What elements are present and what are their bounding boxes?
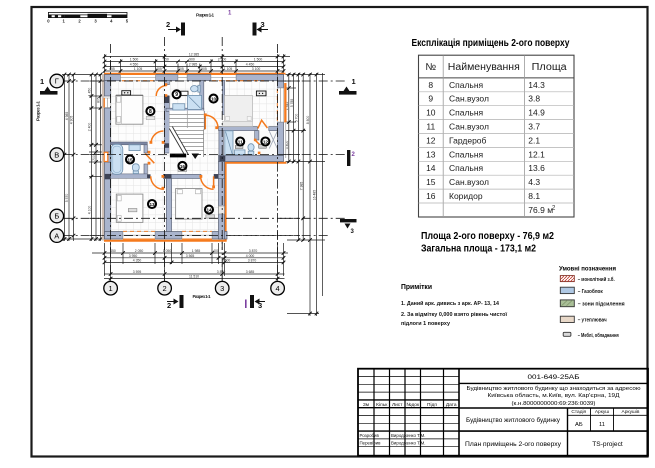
svg-text:1 985: 1 985 bbox=[192, 249, 201, 253]
svg-text:Виродженко Т.М.: Виродженко Т.М. bbox=[391, 441, 425, 446]
svg-text:1 105: 1 105 bbox=[134, 67, 143, 71]
svg-text:TS-project: TS-project bbox=[592, 441, 623, 448]
svg-text:Сан.вузол: Сан.вузол bbox=[449, 94, 489, 104]
svg-text:Г: Г bbox=[55, 77, 59, 86]
svg-text:13: 13 bbox=[149, 202, 155, 207]
svg-text:10: 10 bbox=[211, 97, 217, 102]
svg-text:5 700: 5 700 bbox=[295, 114, 299, 123]
svg-text:13.6: 13.6 bbox=[528, 163, 545, 173]
svg-text:Площа 2-ого поверху - 76,9 м2: Площа 2-ого поверху - 76,9 м2 bbox=[421, 231, 554, 242]
svg-text:Разрез 1-1: Разрез 1-1 bbox=[193, 294, 211, 299]
svg-text:2 050: 2 050 bbox=[135, 249, 144, 253]
svg-text:4 100: 4 100 bbox=[88, 206, 92, 215]
svg-text:16: 16 bbox=[426, 191, 436, 201]
svg-text:16: 16 bbox=[180, 164, 186, 169]
svg-text:5 785: 5 785 bbox=[290, 99, 294, 108]
svg-text:4: 4 bbox=[276, 284, 280, 293]
svg-text:3 500: 3 500 bbox=[222, 258, 231, 262]
svg-text:950: 950 bbox=[163, 58, 169, 62]
svg-text:Підп: Підп bbox=[427, 402, 437, 408]
svg-text:Зм: Зм bbox=[363, 402, 369, 408]
svg-text:1: 1 bbox=[109, 284, 113, 293]
svg-text:455: 455 bbox=[109, 67, 115, 71]
svg-text:400: 400 bbox=[213, 249, 219, 253]
svg-text:4.3: 4.3 bbox=[528, 177, 540, 187]
svg-text:Сан.вузол: Сан.вузол bbox=[449, 177, 489, 187]
svg-text:9: 9 bbox=[428, 94, 433, 104]
svg-text:12.1: 12.1 bbox=[528, 149, 545, 159]
svg-text:Умовні позначення: Умовні позначення bbox=[559, 266, 616, 272]
svg-text:АБ: АБ bbox=[575, 422, 583, 428]
svg-text:Аркушів: Аркушів bbox=[622, 409, 640, 415]
svg-text:1 450: 1 450 bbox=[88, 88, 92, 97]
svg-text:Спальня: Спальня bbox=[449, 80, 484, 90]
svg-text:2: 2 bbox=[163, 284, 167, 293]
svg-text:7 985: 7 985 bbox=[299, 182, 303, 191]
svg-text:Кільк: Кільк bbox=[376, 402, 388, 408]
svg-text:– зони підсилення: – зони підсилення bbox=[578, 302, 625, 308]
svg-text:Б: Б bbox=[54, 212, 59, 221]
svg-text:4 350: 4 350 bbox=[133, 258, 142, 262]
svg-text:– утеплювач: – утеплювач bbox=[578, 318, 607, 324]
svg-text:8.1: 8.1 bbox=[528, 191, 540, 201]
svg-text:3 830: 3 830 bbox=[217, 270, 226, 274]
svg-text:Київська область, м.Київ, вул.: Київська область, м.Київ, вул. Кар'єрна,… bbox=[488, 393, 620, 399]
svg-text:3.7: 3.7 bbox=[528, 122, 540, 132]
svg-text:10: 10 bbox=[426, 108, 436, 118]
svg-text:3.8: 3.8 bbox=[528, 94, 540, 104]
svg-text:2 400: 2 400 bbox=[88, 123, 92, 132]
svg-text:2.1: 2.1 bbox=[528, 135, 540, 145]
svg-text:3: 3 bbox=[220, 284, 224, 293]
svg-text:3 565: 3 565 bbox=[186, 254, 195, 258]
svg-text:(к.н.8000000000:69:236:0039): (к.н.8000000000:69:236:0039) bbox=[512, 401, 596, 407]
svg-text:Лист: Лист bbox=[392, 402, 403, 408]
svg-text:1 050: 1 050 bbox=[163, 249, 172, 253]
svg-text:Розробив: Розробив bbox=[360, 433, 380, 438]
svg-text:4 450: 4 450 bbox=[246, 63, 255, 67]
svg-text:905: 905 bbox=[201, 67, 207, 71]
svg-text:11: 11 bbox=[599, 422, 605, 428]
svg-text:8: 8 bbox=[149, 109, 152, 115]
svg-text:3 870: 3 870 bbox=[249, 249, 258, 253]
svg-text:76.9 м: 76.9 м bbox=[528, 205, 553, 215]
svg-text:Дата: Дата bbox=[446, 402, 457, 408]
svg-text:4 985: 4 985 bbox=[65, 112, 69, 121]
svg-text:підлоги 1 поверху: підлоги 1 поверху bbox=[401, 321, 451, 327]
svg-text:450: 450 bbox=[110, 249, 116, 253]
svg-text:14.9: 14.9 bbox=[528, 108, 545, 118]
svg-text:Примітки: Примітки bbox=[401, 282, 432, 291]
svg-text:Стадія: Стадія bbox=[571, 409, 586, 415]
svg-text:12: 12 bbox=[426, 135, 436, 145]
svg-text:4 905: 4 905 bbox=[70, 116, 74, 125]
svg-text:12 385: 12 385 bbox=[189, 53, 199, 57]
svg-text:805: 805 bbox=[97, 97, 101, 103]
svg-text:11: 11 bbox=[238, 139, 243, 144]
svg-text:15: 15 bbox=[426, 177, 436, 187]
svg-text:14: 14 bbox=[426, 163, 436, 173]
svg-text:2: 2 bbox=[166, 20, 170, 29]
svg-text:8: 8 bbox=[428, 80, 433, 90]
svg-text:1 500: 1 500 bbox=[254, 58, 263, 62]
svg-text:1. Даний арк. дивись з арк. АР: 1. Даний арк. дивись з арк. АР- 13, 14 bbox=[401, 300, 500, 307]
svg-text:705: 705 bbox=[178, 67, 184, 71]
svg-text:– Меблі, обладнання: – Меблі, обладнання bbox=[578, 332, 619, 339]
svg-text:12: 12 bbox=[263, 139, 269, 144]
svg-text:№: № bbox=[425, 62, 436, 73]
svg-text:15: 15 bbox=[127, 157, 133, 162]
svg-text:Гардероб: Гардероб bbox=[449, 135, 487, 145]
svg-text:2: 2 bbox=[167, 301, 171, 310]
svg-text:1: 1 bbox=[40, 77, 44, 86]
svg-text:4 000: 4 000 bbox=[246, 254, 255, 258]
svg-text:А: А bbox=[54, 231, 59, 240]
svg-text:Сан.вузол: Сан.вузол bbox=[449, 122, 489, 132]
svg-text:700: 700 bbox=[92, 155, 96, 161]
svg-text:2 985: 2 985 bbox=[189, 63, 198, 67]
svg-text:3 950: 3 950 bbox=[129, 254, 138, 258]
svg-text:Разрез 1-1: Разрез 1-1 bbox=[196, 13, 214, 18]
svg-text:405: 405 bbox=[156, 67, 162, 71]
svg-text:3 685: 3 685 bbox=[246, 270, 255, 274]
svg-text:План приміщень 2-ого поверху: План приміщень 2-ого поверху bbox=[465, 440, 562, 448]
svg-text:5 570: 5 570 bbox=[65, 194, 69, 203]
svg-text:Коридор: Коридор bbox=[449, 191, 483, 201]
svg-text:Будівництво житлового будинку: Будівництво житлового будинку що знаходи… bbox=[467, 386, 641, 392]
svg-text:16 485: 16 485 bbox=[313, 190, 317, 200]
svg-text:9: 9 bbox=[175, 92, 178, 98]
svg-text:14: 14 bbox=[206, 208, 212, 213]
svg-text:Аркуш: Аркуш bbox=[595, 409, 609, 415]
svg-text:– Газоблок: – Газоблок bbox=[578, 288, 603, 295]
svg-text:Виродженко Т.М.: Виродженко Т.М. bbox=[391, 433, 425, 438]
svg-text:Площа: Площа bbox=[532, 62, 567, 73]
svg-text:Спальня: Спальня bbox=[449, 149, 484, 159]
svg-text:001-649-25АБ: 001-649-25АБ bbox=[528, 374, 581, 381]
svg-text:3 100: 3 100 bbox=[252, 67, 261, 71]
svg-text:3: 3 bbox=[258, 301, 262, 310]
svg-text:№док: №док bbox=[406, 402, 420, 408]
svg-text:11: 11 bbox=[426, 122, 435, 132]
svg-text:4 550: 4 550 bbox=[130, 63, 139, 67]
svg-text:13: 13 bbox=[426, 149, 436, 159]
svg-text:1 500: 1 500 bbox=[130, 58, 139, 62]
svg-text:3 870: 3 870 bbox=[248, 258, 257, 262]
svg-text:8 800: 8 800 bbox=[306, 116, 310, 125]
svg-text:11 510: 11 510 bbox=[189, 275, 199, 279]
svg-text:Перевірив: Перевірив bbox=[360, 441, 382, 446]
svg-text:В: В bbox=[54, 150, 59, 159]
svg-text:Загальна площа - 173,1 м2: Загальна площа - 173,1 м2 bbox=[421, 244, 536, 255]
svg-text:Найменування: Найменування bbox=[448, 62, 520, 73]
svg-text:Експлікація приміщень 2-ого по: Експлікація приміщень 2-ого поверху bbox=[412, 37, 570, 49]
svg-text:Будівництво житлового будинку: Будівництво житлового будинку bbox=[466, 416, 561, 424]
svg-text:1 105: 1 105 bbox=[224, 67, 233, 71]
svg-text:3 595: 3 595 bbox=[133, 270, 142, 274]
svg-text:– монолітний з.б.: – монолітний з.б. bbox=[578, 276, 615, 283]
svg-text:Спальня: Спальня bbox=[449, 163, 484, 173]
svg-text:14.3: 14.3 bbox=[528, 80, 545, 90]
svg-text:Спальня: Спальня bbox=[449, 108, 484, 118]
svg-text:2. За відмітку 0,000 взято рів: 2. За відмітку 0,000 взято рівень чистої bbox=[401, 312, 507, 318]
svg-text:Разрез 1-1: Разрез 1-1 bbox=[36, 101, 41, 121]
svg-text:1: 1 bbox=[352, 77, 356, 86]
svg-text:900: 900 bbox=[189, 58, 195, 62]
